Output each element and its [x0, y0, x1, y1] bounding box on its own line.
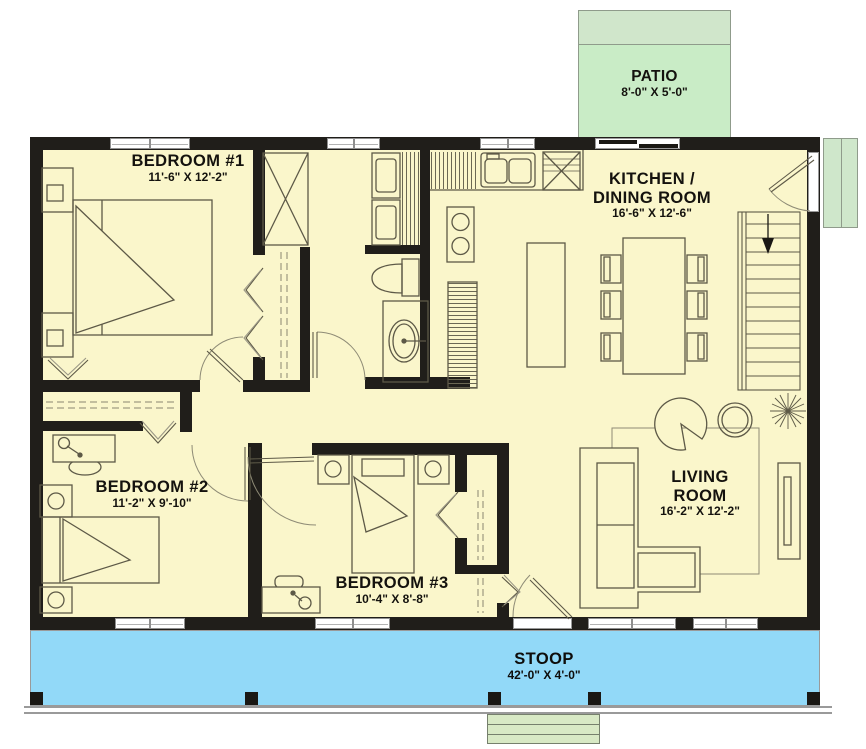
- desk-icon: [53, 435, 115, 475]
- bedroom3-dims: 10'-4" X 8'-8": [292, 593, 492, 607]
- washer-icon: [372, 153, 400, 198]
- kitchen-name-line2: DINING ROOM: [552, 189, 752, 208]
- dining-table-icon: [623, 238, 685, 374]
- toilet-icon: [372, 259, 419, 296]
- counter-outline: [448, 282, 477, 388]
- living-name-line1: LIVING: [600, 468, 800, 487]
- stairs-down-arrow-icon: [762, 214, 774, 254]
- bedroom3-name: BEDROOM #3: [292, 574, 492, 593]
- bedroom2-label: BEDROOM #2 11'-2" X 9'-10": [47, 478, 257, 510]
- stove-icon: [447, 207, 474, 262]
- bedroom3-label: BEDROOM #3 10'-4" X 8'-8": [292, 574, 492, 606]
- kitchen-dining-label: KITCHEN / DINING ROOM 16'-6" X 12'-6": [552, 170, 752, 221]
- dryer-icon: [372, 200, 400, 245]
- kitchen-dims: 16'-6" X 12'-6": [552, 207, 752, 221]
- kitchen-name-line1: KITCHEN /: [552, 170, 752, 189]
- door-icon: [192, 189, 810, 617]
- plan-symbols: [0, 0, 866, 749]
- kitchen-sink-icon: [481, 153, 535, 187]
- bed-icon: [73, 200, 212, 335]
- living-room-label: LIVING ROOM 16'-2" X 12'-2": [600, 468, 800, 519]
- floor-plan: PATIO 8'-0" X 5'-0" STOOP 42'-0" X 4'-0": [0, 0, 866, 749]
- bed-icon: [42, 517, 159, 583]
- dining-chair-icon: [601, 255, 707, 361]
- plant-icon: [770, 393, 806, 429]
- side-table-icon: [718, 403, 752, 437]
- bedroom1-label: BEDROOM #1 11'-6" X 12'-2": [88, 152, 288, 184]
- nightstand-icon: [42, 168, 73, 357]
- armchair-icon: [655, 398, 707, 450]
- bedroom1-dims: 11'-6" X 12'-2": [88, 171, 288, 185]
- living-name-line2: ROOM: [600, 487, 800, 506]
- kitchen-island: [527, 243, 565, 367]
- bedroom2-dims: 11'-2" X 9'-10": [47, 497, 257, 511]
- bathroom-sink-icon: [383, 301, 428, 382]
- living-dims: 16'-2" X 12'-2": [600, 505, 800, 519]
- bed-icon: [352, 455, 414, 573]
- bedroom2-name: BEDROOM #2: [47, 478, 257, 497]
- bedroom1-name: BEDROOM #1: [88, 152, 288, 171]
